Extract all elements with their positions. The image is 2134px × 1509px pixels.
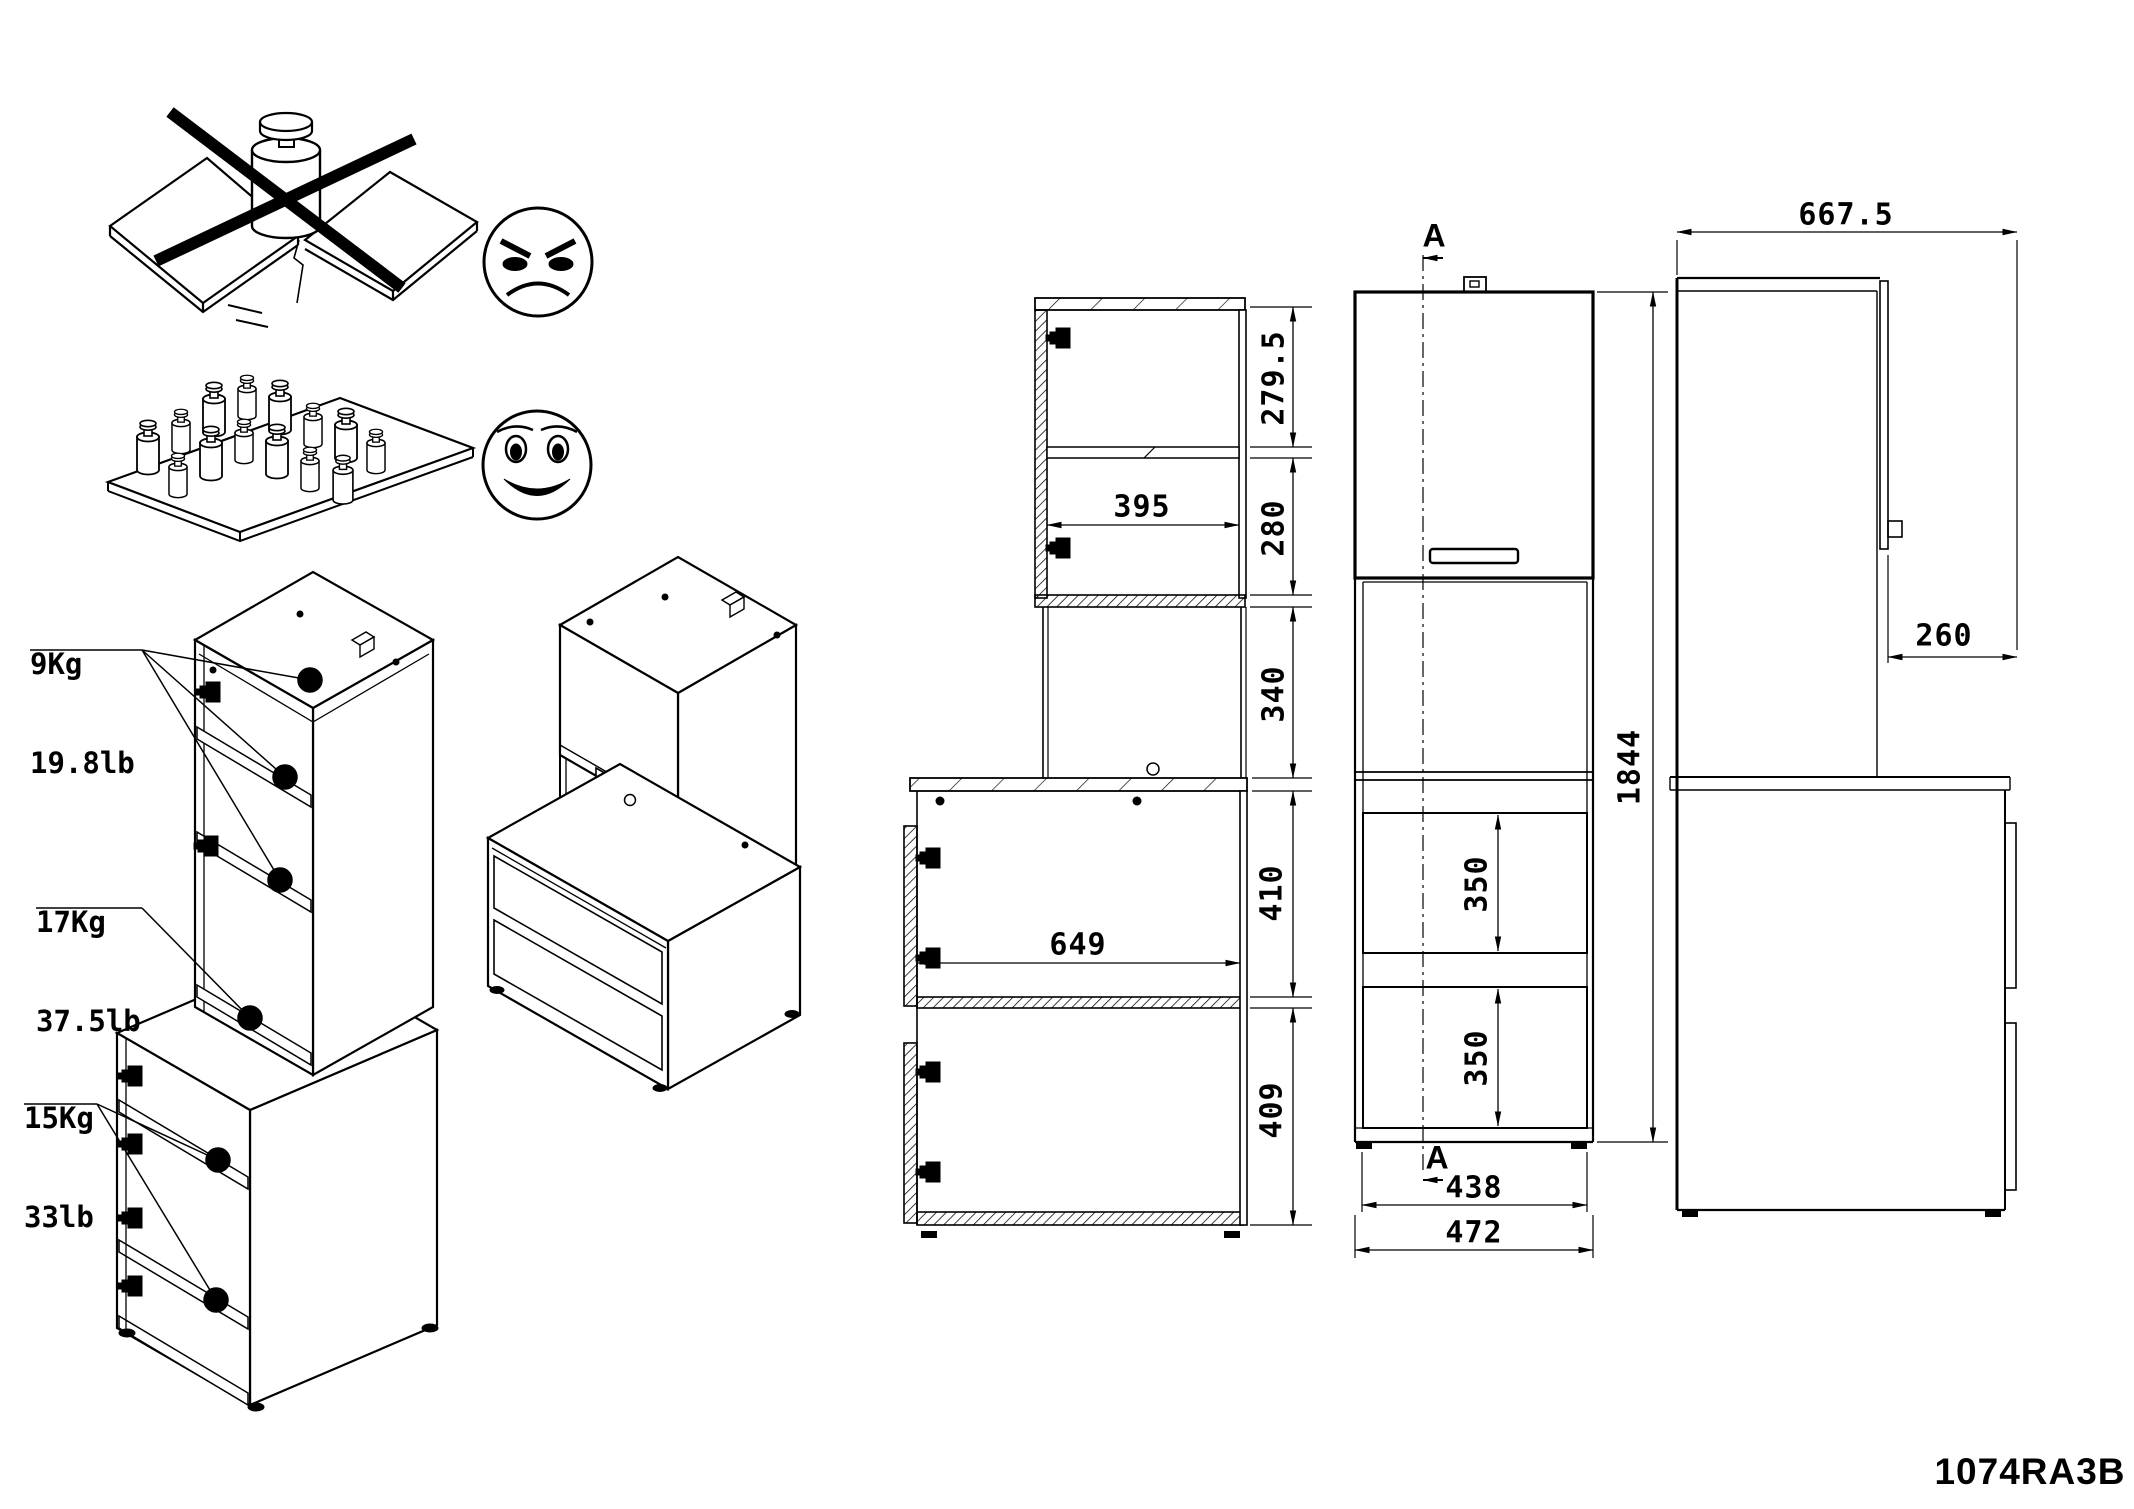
dim-compartment-2: 280	[1257, 499, 1292, 556]
load-label-base-lb: 33lb	[24, 1201, 94, 1234]
dim-inner-width-base: 649	[1049, 928, 1106, 963]
dim-outer-width: 472	[1445, 1216, 1502, 1251]
model-number: 1074RA3B	[1934, 1451, 2125, 1493]
technical-sheet: 9Kg 19.8lb 17Kg 37.5lb 15Kg 33lb 395 279…	[0, 0, 2134, 1509]
dim-drawer-2: 350	[1460, 1029, 1495, 1086]
load-label-upper: 9Kg 19.8lb	[30, 582, 135, 846]
dim-gap-height: 340	[1257, 665, 1292, 722]
happy-face-icon	[483, 411, 591, 519]
load-label-base: 15Kg 33lb	[24, 1036, 94, 1300]
dim-base-compartment-1: 410	[1255, 864, 1290, 921]
iso-view-open-carcass	[117, 572, 438, 1411]
load-label-middle-lb: 37.5lb	[36, 1005, 141, 1038]
dim-compartment-1: 279.5	[1257, 330, 1292, 425]
dim-upper-depth: 260	[1915, 619, 1972, 654]
side-view	[1670, 232, 2017, 1217]
dim-inner-width: 438	[1445, 1171, 1502, 1206]
section-marker-top: A	[1422, 218, 1445, 255]
dim-total-height: 1844	[1613, 729, 1648, 805]
dim-total-depth: 667.5	[1798, 198, 1893, 233]
load-label-upper-kg: 9Kg	[30, 648, 135, 681]
load-label-base-kg: 15Kg	[24, 1102, 94, 1135]
load-label-upper-lb: 19.8lb	[30, 747, 135, 780]
dim-drawer-1: 350	[1460, 855, 1495, 912]
iso-view-assembled	[488, 557, 800, 1092]
dim-inner-width-top: 395	[1113, 490, 1170, 525]
load-label-middle-kg: 17Kg	[36, 906, 141, 939]
warning-wrong-icon	[110, 112, 477, 327]
dim-base-compartment-2: 409	[1255, 1081, 1290, 1138]
angry-face-icon	[484, 208, 592, 316]
warning-correct-icon	[108, 375, 473, 541]
section-view	[904, 298, 1312, 1238]
